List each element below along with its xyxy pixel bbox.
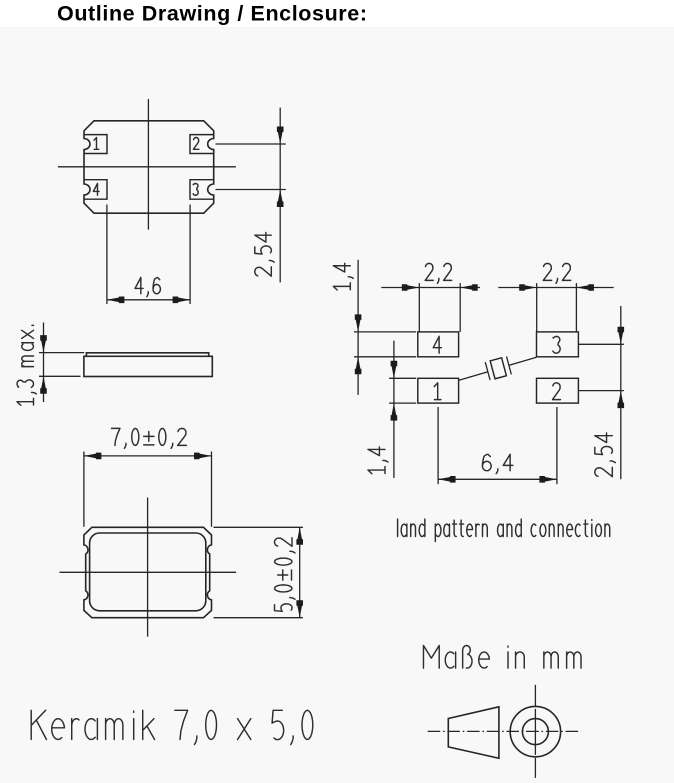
svg-text:Outline Drawing / Enclosure:: Outline Drawing / Enclosure: [57,1,367,25]
